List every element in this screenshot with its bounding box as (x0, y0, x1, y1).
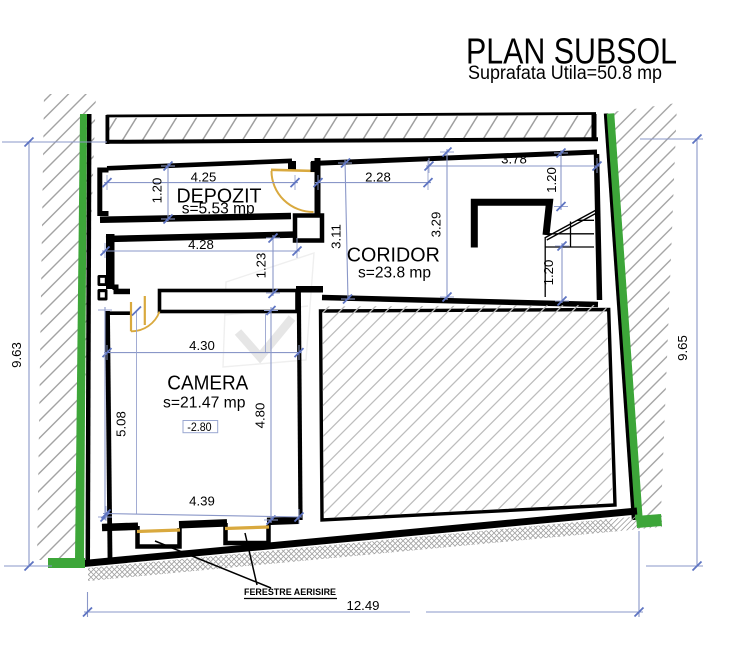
svg-text:s=5.53 mp: s=5.53 mp (182, 201, 255, 218)
svg-text:4.25: 4.25 (191, 170, 217, 185)
svg-text:3.29: 3.29 (429, 212, 444, 238)
svg-text:9.65: 9.65 (675, 335, 690, 361)
svg-text:2.28: 2.28 (365, 170, 391, 185)
svg-text:-2.80: -2.80 (187, 420, 211, 434)
svg-text:4.30: 4.30 (189, 338, 215, 353)
svg-text:1.20: 1.20 (544, 167, 559, 193)
svg-text:3.78: 3.78 (501, 152, 527, 167)
svg-text:5.08: 5.08 (114, 411, 129, 437)
svg-text:1.20: 1.20 (150, 178, 165, 204)
svg-text:3.11: 3.11 (329, 224, 344, 249)
svg-text:CORIDOR: CORIDOR (347, 244, 440, 267)
svg-text:12.49: 12.49 (346, 598, 379, 613)
svg-text:s=21.47 mp: s=21.47 mp (163, 395, 246, 412)
svg-text:FERESTRE AERISIRE: FERESTRE AERISIRE (244, 587, 336, 597)
svg-text:4.39: 4.39 (189, 494, 215, 509)
svg-text:1.20: 1.20 (541, 260, 556, 286)
svg-text:CAMERA: CAMERA (167, 371, 248, 394)
svg-text:4.80: 4.80 (253, 403, 268, 429)
svg-text:1.23: 1.23 (254, 253, 269, 279)
svg-text:9.63: 9.63 (9, 342, 24, 368)
svg-text:Suprafata Utila=50.8 mp: Suprafata Utila=50.8 mp (468, 63, 662, 84)
svg-text:s=23.8 mp: s=23.8 mp (358, 265, 431, 282)
svg-text:4.28: 4.28 (188, 237, 214, 252)
